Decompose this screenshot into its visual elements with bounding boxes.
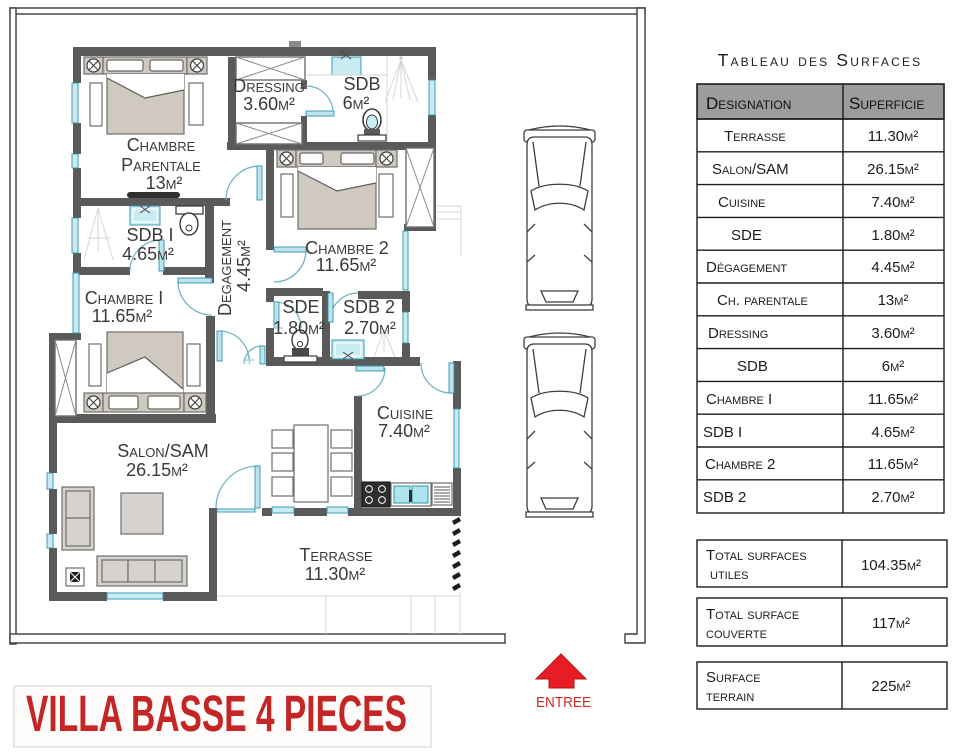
svg-text:13m²: 13m² (878, 292, 909, 309)
svg-text:Dégagement: Dégagement (706, 259, 787, 276)
svg-text:11.30m²: 11.30m² (868, 128, 919, 145)
svg-text:11.30m²: 11.30m² (305, 564, 366, 584)
svg-text:104.35m²: 104.35m² (861, 557, 921, 574)
svg-text:Parentale: Parentale (121, 155, 201, 175)
svg-text:Tableau des Surfaces: Tableau des Surfaces (718, 50, 923, 70)
svg-text:Surface: Surface (706, 669, 761, 686)
svg-text:Degagement: Degagement (215, 220, 235, 316)
svg-text:SDE: SDE (731, 227, 762, 244)
svg-text:SDE: SDE (282, 297, 319, 317)
svg-text:1.80m²: 1.80m² (273, 318, 325, 338)
svg-text:ENTREE: ENTREE (536, 694, 591, 711)
svg-text:SDB: SDB (343, 74, 380, 94)
svg-text:SDB: SDB (737, 358, 768, 375)
svg-text:13m²: 13m² (146, 173, 183, 193)
svg-text:6m²: 6m² (343, 93, 370, 113)
svg-text:7.40m²: 7.40m² (378, 421, 430, 441)
svg-text:26.15m²: 26.15m² (126, 460, 188, 480)
svg-text:VILLA BASSE 4 PIECES: VILLA BASSE 4 PIECES (26, 685, 407, 742)
svg-text:Salon/SAM: Salon/SAM (712, 161, 789, 178)
svg-text:4.65m²: 4.65m² (871, 424, 914, 441)
svg-text:Total surfaces: Total surfaces (706, 547, 807, 564)
svg-text:11.65m²: 11.65m² (92, 306, 153, 326)
svg-text:Designation: Designation (706, 94, 791, 113)
svg-text:117m²: 117m² (872, 615, 910, 632)
svg-text:Dressing: Dressing (233, 76, 305, 96)
svg-text:Chambre 2: Chambre 2 (705, 456, 775, 473)
svg-text:Chambre I: Chambre I (85, 288, 164, 308)
svg-text:11.65m²: 11.65m² (316, 255, 377, 275)
svg-text:Superficie: Superficie (849, 94, 924, 113)
svg-text:couverte: couverte (706, 625, 767, 642)
svg-text:terrain: terrain (706, 688, 754, 705)
svg-text:4.65m²: 4.65m² (122, 244, 174, 264)
svg-text:26.15m²: 26.15m² (867, 161, 919, 178)
svg-text:Chambre I: Chambre I (706, 391, 772, 408)
svg-text:4.45m²: 4.45m² (234, 240, 254, 292)
svg-text:SDB I: SDB I (703, 424, 742, 441)
svg-text:2.70m²: 2.70m² (344, 318, 396, 338)
svg-text:3.60m²: 3.60m² (871, 325, 914, 342)
svg-text:225m²: 225m² (871, 678, 910, 695)
svg-text:11.65m²: 11.65m² (868, 456, 919, 473)
svg-text:SDB I: SDB I (126, 225, 173, 245)
svg-text:Salon/SAM: Salon/SAM (117, 441, 208, 461)
svg-text:3.60m²: 3.60m² (243, 94, 295, 114)
svg-text:SDB 2: SDB 2 (343, 297, 395, 317)
svg-text:1.80m²: 1.80m² (871, 227, 914, 244)
svg-text:Cuisine: Cuisine (377, 403, 434, 423)
svg-text:Dressing: Dressing (708, 325, 768, 342)
svg-text:Total surface: Total surface (706, 606, 799, 623)
svg-text:Chambre: Chambre (127, 135, 196, 155)
svg-text:2.70m²: 2.70m² (871, 489, 914, 506)
svg-text:Terrasse: Terrasse (724, 128, 786, 145)
svg-text:utiles: utiles (710, 566, 749, 583)
svg-text:11.65m²: 11.65m² (868, 391, 919, 408)
svg-text:6m²: 6m² (882, 358, 905, 375)
svg-text:SDB 2: SDB 2 (703, 489, 746, 506)
svg-text:4.45m²: 4.45m² (871, 259, 914, 276)
svg-text:Terrasse: Terrasse (299, 545, 372, 565)
svg-text:Ch. parentale: Ch. parentale (717, 292, 808, 309)
svg-text:7.40m²: 7.40m² (871, 194, 914, 211)
svg-text:Cuisine: Cuisine (718, 194, 766, 211)
